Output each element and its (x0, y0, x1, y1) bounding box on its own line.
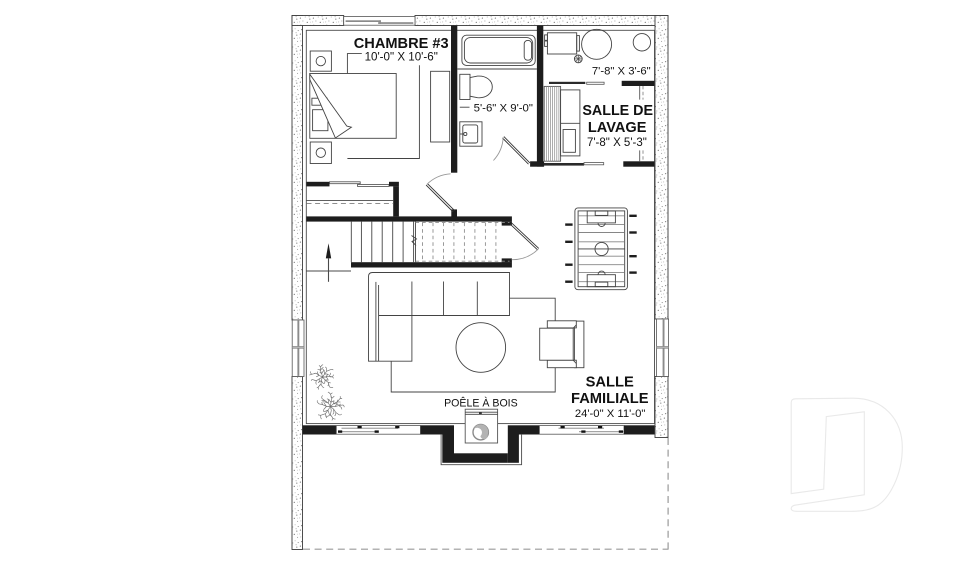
svg-text:POÊLE À BOIS: POÊLE À BOIS (444, 397, 518, 410)
svg-text:7'-8" X 3'-6": 7'-8" X 3'-6" (592, 65, 651, 77)
svg-text:SALLE DE: SALLE DE (582, 103, 653, 119)
svg-text:SALLE: SALLE (586, 374, 634, 390)
svg-text:FAMILIALE: FAMILIALE (571, 391, 649, 407)
svg-text:LAVAGE: LAVAGE (588, 120, 647, 136)
svg-text:7'-8" X 5'-3": 7'-8" X 5'-3" (587, 137, 647, 149)
svg-text:24'-0" X 11'-0": 24'-0" X 11'-0" (575, 408, 646, 420)
svg-text:10'-0" X 10'-6": 10'-0" X 10'-6" (365, 50, 438, 63)
svg-text:5'-6" X 9'-0": 5'-6" X 9'-0" (474, 102, 533, 114)
